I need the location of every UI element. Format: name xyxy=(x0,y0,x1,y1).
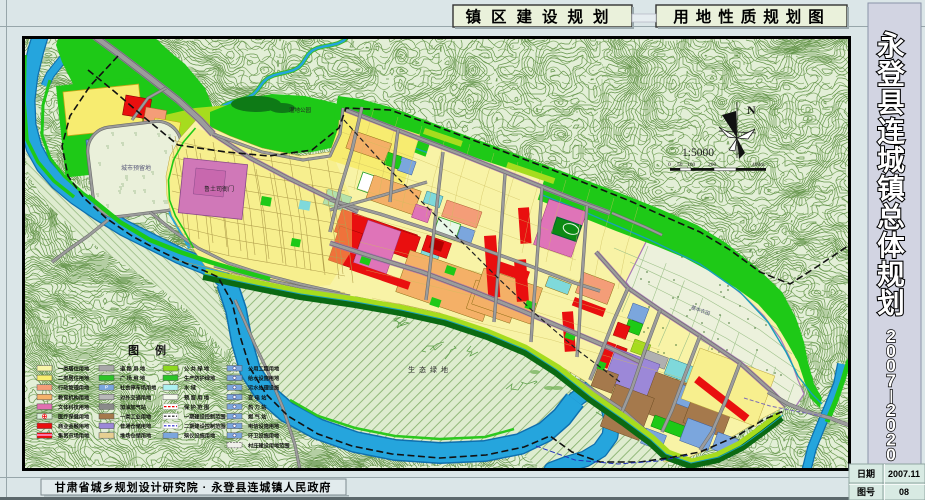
svg-text:加油加气站: 加油加气站 xyxy=(119,403,147,411)
svg-text:公 共 绿 地: 公 共 绿 地 xyxy=(184,365,210,373)
svg-text:图例: 图例 xyxy=(128,343,182,357)
svg-text:广 场 用 地: 广 场 用 地 xyxy=(120,374,146,382)
svg-text:镇区建设规划: 镇区建设规划 xyxy=(465,7,618,26)
svg-text:电信设施用地: 电信设施用地 xyxy=(248,422,280,430)
svg-text:用地性质规划图: 用地性质规划图 xyxy=(673,7,831,26)
svg-text:堆场仓储用地: 堆场仓储用地 xyxy=(120,432,152,440)
svg-text:划: 划 xyxy=(877,287,905,318)
svg-text:城: 城 xyxy=(877,144,905,175)
svg-text:规: 规 xyxy=(877,259,905,290)
svg-text:二期建设控制范围: 二期建设控制范围 xyxy=(184,422,226,430)
svg-text:村庄建设用地范围: 村庄建设用地范围 xyxy=(248,441,290,449)
svg-text:200: 200 xyxy=(708,162,717,168)
svg-text:一期建设控制范围: 一期建设控制范围 xyxy=(184,413,226,421)
svg-text:连: 连 xyxy=(877,116,905,147)
svg-text:污水处理设施: 污水处理设施 xyxy=(248,384,280,392)
svg-text:总: 总 xyxy=(877,202,905,233)
svg-text:殡仪设施用地: 殡仪设施用地 xyxy=(184,432,216,440)
svg-text:县: 县 xyxy=(877,87,905,118)
svg-text:100: 100 xyxy=(687,162,696,168)
svg-text:商业金融用地: 商业金融用地 xyxy=(58,422,90,430)
svg-text:镇: 镇 xyxy=(877,173,905,204)
svg-text:环卫设施用地: 环卫设施用地 xyxy=(248,432,280,440)
svg-text:图号: 图号 xyxy=(857,487,875,497)
svg-text:甘肃省城乡规划设计研究院 · 永登县连城镇人民政府: 甘肃省城乡规划设计研究院 · 永登县连城镇人民政府 xyxy=(55,480,332,494)
svg-text:城市预留地: 城市预留地 xyxy=(121,164,151,172)
svg-text:集贸市场用地: 集贸市场用地 xyxy=(57,432,90,440)
svg-text:生态绿地: 生态绿地 xyxy=(408,365,452,374)
svg-text:行政管理用地: 行政管理用地 xyxy=(57,384,90,392)
svg-text:一类居住用地: 一类居住用地 xyxy=(58,365,90,373)
svg-text:给水设施用地: 给水设施用地 xyxy=(248,374,280,382)
svg-text:体: 体 xyxy=(877,230,905,261)
svg-text:0: 0 xyxy=(668,162,671,168)
svg-text:社会停车场用地: 社会停车场用地 xyxy=(119,384,157,392)
svg-text:公用工程用地: 公用工程用地 xyxy=(248,365,280,373)
svg-text:变 电 站: 变 电 站 xyxy=(248,393,267,401)
svg-text:400m: 400m xyxy=(752,162,765,168)
svg-text:0: 0 xyxy=(886,444,896,464)
svg-text:生产防护绿地: 生产防护绿地 xyxy=(184,374,216,382)
svg-text:P: P xyxy=(105,385,108,390)
svg-text:N: N xyxy=(747,103,756,117)
svg-text:水 域: 水 域 xyxy=(184,384,197,392)
svg-text:文体科技用地: 文体科技用地 xyxy=(58,403,90,411)
svg-text:普通仓储用地: 普通仓储用地 xyxy=(120,422,152,430)
svg-text:医疗保健用地: 医疗保健用地 xyxy=(58,413,90,421)
svg-text:1:5000: 1:5000 xyxy=(682,147,714,159)
svg-text:2007.11: 2007.11 xyxy=(888,469,920,479)
svg-text:教育机构用地: 教育机构用地 xyxy=(57,393,90,401)
svg-text:保 护 范 围: 保 护 范 围 xyxy=(183,403,209,411)
svg-text:湿地公园: 湿地公园 xyxy=(289,106,312,114)
svg-text:对外交通用地: 对外交通用地 xyxy=(120,393,152,401)
svg-text:永: 永 xyxy=(876,30,905,61)
svg-text:预 留 用 地: 预 留 用 地 xyxy=(184,393,210,401)
svg-text:热 力 站: 热 力 站 xyxy=(248,403,267,411)
svg-text:一类工业用地: 一类工业用地 xyxy=(120,413,152,421)
svg-text:燃 气 站: 燃 气 站 xyxy=(248,413,267,421)
svg-text:日期: 日期 xyxy=(857,468,875,479)
svg-text:登: 登 xyxy=(876,59,905,90)
svg-text:7: 7 xyxy=(886,370,896,390)
svg-text:道 路 用 地: 道 路 用 地 xyxy=(120,365,146,373)
svg-text:08: 08 xyxy=(899,487,909,497)
svg-text:二类居住用地: 二类居住用地 xyxy=(58,374,90,382)
svg-text:50: 50 xyxy=(677,162,683,168)
svg-text:鲁土司衙门: 鲁土司衙门 xyxy=(204,185,234,193)
